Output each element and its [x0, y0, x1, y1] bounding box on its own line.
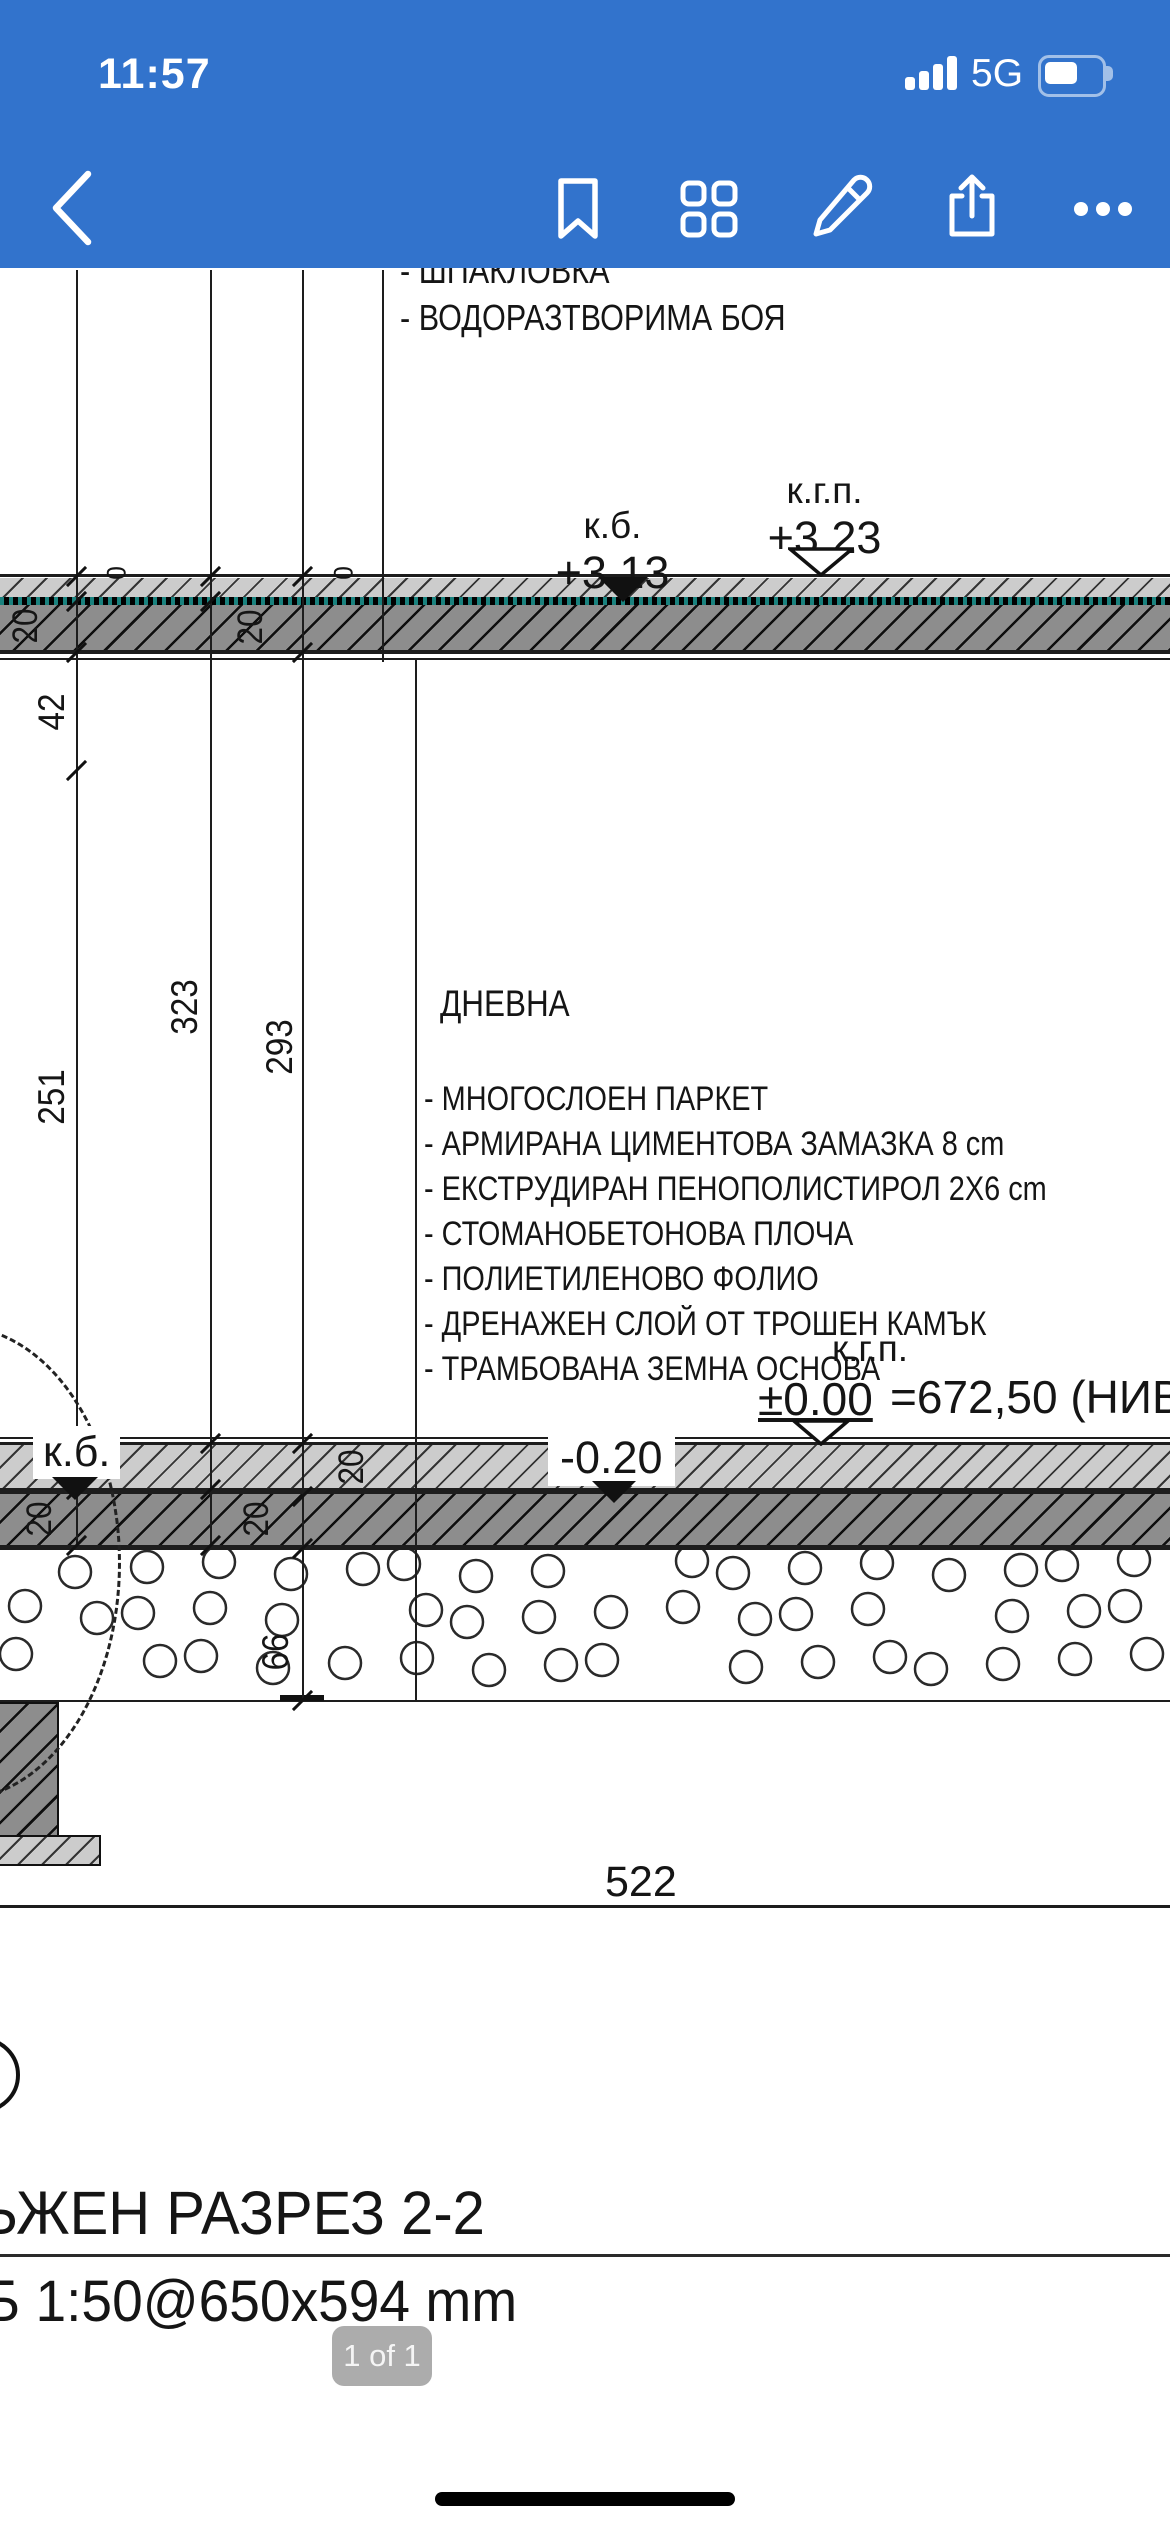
dimension-line — [76, 270, 78, 1545]
dimension-line — [302, 270, 304, 1700]
drawing-title: ЬЖЕН РАЗРЕЗ 2-2 — [0, 2178, 485, 2248]
home-indicator[interactable] — [435, 2492, 735, 2506]
page-indicator-badge: 1 of 1 — [332, 2326, 432, 2386]
app-header: 11:57 5G — [0, 0, 1170, 268]
level-triangle-kgp-lower — [792, 1419, 850, 1451]
upper-concrete-slab-band — [0, 605, 1170, 650]
level-triangle-kb-upper — [598, 577, 648, 607]
phone-screen: 11:57 5G — [0, 0, 1170, 2532]
level-mark-kgp-lower: к.г.п. — [795, 1328, 945, 1370]
dim-522: 522 — [605, 1858, 677, 1907]
dim-42: 42 — [31, 693, 73, 730]
list-item: - ЕКСТРУДИРАН ПЕНОПОЛИСТИРОЛ 2X6 cm — [424, 1170, 1157, 1215]
dashed-hidden-contour — [0, 1325, 121, 1801]
dim-0-b: 0 — [329, 566, 360, 580]
dim-0-a: 0 — [102, 566, 133, 580]
back-button[interactable] — [48, 170, 94, 246]
list-item: - МНОГОСЛОЕН ПАРКЕТ — [424, 1080, 1157, 1125]
dim-20-lower-a: 20 — [332, 1449, 372, 1484]
level-value-kgp-lower: ±0.00 — [758, 1372, 873, 1426]
share-icon[interactable] — [944, 172, 1000, 240]
level-triangle-minus020 — [592, 1481, 636, 1508]
thumbnails-grid-icon[interactable] — [680, 180, 738, 238]
title-divider — [0, 2254, 1170, 2257]
dimension-line — [415, 658, 417, 1700]
dim-20-lower-c: 20 — [237, 1501, 277, 1536]
gravel-bottom-line — [0, 1700, 1170, 1702]
floor-concrete-slab-band — [0, 1494, 1170, 1545]
dim-20-upper-a: 20 — [6, 608, 46, 643]
dim-20-lower-b: 20 — [20, 1501, 60, 1536]
upper-slab-under-line — [0, 658, 1170, 660]
status-time: 11:57 — [98, 50, 211, 99]
dim-20-upper-b: 20 — [231, 609, 271, 644]
section-bubble-partial — [0, 2037, 20, 2113]
dim-66: 66 — [255, 1633, 297, 1670]
foundation-footing — [0, 1835, 101, 1866]
drawing-scale-label: Б 1:50@650x594 mm — [0, 2268, 517, 2335]
dim-522-line — [0, 1905, 1170, 1908]
list-item: - ДРЕНАЖЕН СЛОЙ ОТ ТРОШЕН КАМЪК — [424, 1305, 1157, 1350]
bookmark-icon[interactable] — [554, 178, 602, 240]
network-type-label: 5G — [971, 52, 1023, 96]
list-item: - ПОЛИЕТИЛЕНОВО ФОЛИО — [424, 1260, 1157, 1305]
level-triangle-kgp-upper — [788, 547, 854, 582]
gravel-drainage-layer — [0, 1550, 1170, 1700]
level-triangle-kb-lower — [52, 1477, 98, 1505]
annotate-pencil-icon[interactable] — [810, 174, 874, 238]
level-mark-minus020: -0.20 — [548, 1430, 675, 1486]
battery-icon — [1038, 55, 1106, 97]
list-item: - СТОМАНОБЕТОНОВА ПЛОЧА — [424, 1215, 1157, 1260]
signal-strength-icon — [905, 56, 959, 90]
dimension-line — [210, 270, 212, 1548]
dim-251: 251 — [31, 1069, 73, 1125]
level-mark-kb-lower: к.б. — [33, 1426, 120, 1479]
upper-slab-bottom-line — [0, 650, 1170, 654]
level-abs-kgp-lower: =672,50 (НИВ — [890, 1370, 1170, 1424]
room-label: ДНЕВНА — [440, 983, 593, 1025]
dim-323: 323 — [164, 979, 206, 1035]
more-options-icon[interactable] — [1072, 200, 1134, 218]
ceiling-note-2: - ВОДОРАЗТВОРИМА БОЯ — [400, 297, 854, 339]
dimension-line — [382, 270, 384, 662]
floor-layers-list: - МНОГОСЛОЕН ПАРКЕТ- АРМИРАНА ЦИМЕНТОВА … — [424, 1080, 1157, 1395]
floor-mid-line — [0, 1488, 1170, 1494]
dim-293: 293 — [259, 1019, 301, 1075]
floor-slab-bottom-line — [0, 1545, 1170, 1550]
battery-nub — [1106, 66, 1113, 81]
list-item: - АРМИРАНА ЦИМЕНТОВА ЗАМАЗКА 8 cm — [424, 1125, 1157, 1170]
